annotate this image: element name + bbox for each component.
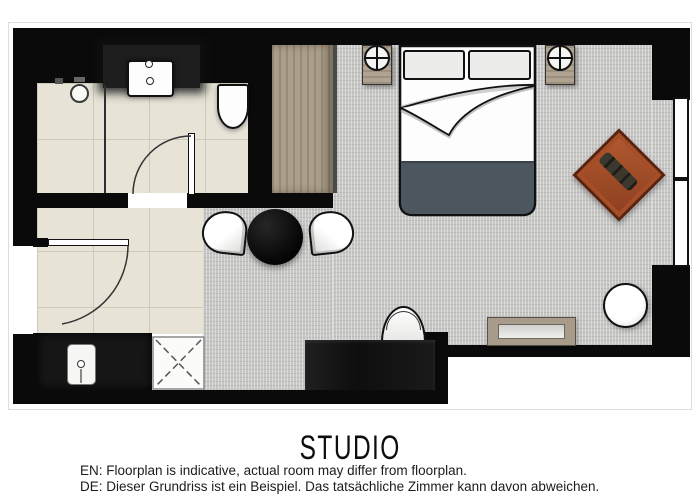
stool: [603, 283, 648, 328]
disclaimer-en: EN: Floorplan is indicative, actual room…: [80, 463, 599, 479]
right-wall-top-block: [652, 28, 690, 100]
right-wall-bottom-block: [652, 265, 690, 350]
disclaimer-text: EN: Floorplan is indicative, actual room…: [80, 463, 599, 494]
bathroom-right-wall: [248, 28, 272, 208]
disclaimer-de: DE: Dieser Grundriss ist ein Beispiel. D…: [80, 479, 599, 495]
luggage-rack: [152, 336, 205, 390]
entry-jamb-top: [33, 238, 48, 247]
double-bed: [398, 44, 537, 218]
window: [673, 97, 689, 267]
toilet: [217, 84, 249, 129]
bottom-wall-left: [13, 390, 448, 404]
bed-blanket: [401, 161, 534, 214]
floorplan-page: STUDIO EN: Floorplan is indicative, actu…: [0, 0, 700, 500]
lamp-left-icon: [364, 45, 390, 71]
desk: [305, 340, 435, 390]
entry-door-swing-arc: [48, 239, 133, 329]
dining-table: [247, 209, 303, 265]
window-transom: [675, 177, 687, 181]
minibar-appliance: [67, 344, 96, 385]
appliance-knob-icon: [77, 360, 85, 368]
bench: [487, 317, 576, 346]
bench-inner-panel: [498, 324, 565, 339]
lamp-right-icon: [547, 45, 573, 71]
sink-faucet-icon: [145, 60, 153, 68]
pillow-left: [404, 51, 464, 79]
shower-head-icon: [55, 78, 63, 84]
shower-drain: [70, 84, 89, 103]
bathroom-hall-wall-right: [187, 193, 333, 208]
bathroom-door-swing-arc: [131, 133, 195, 197]
left-wall-upper: [13, 28, 37, 246]
armchair-cushion: [598, 151, 639, 192]
shower-control-icon: [74, 77, 85, 82]
pillow-right: [469, 51, 530, 79]
wardrobe: [272, 45, 337, 193]
bathroom-hall-wall-left: [37, 193, 128, 208]
shower-partition: [104, 85, 106, 193]
sink-drain-icon: [146, 77, 154, 85]
